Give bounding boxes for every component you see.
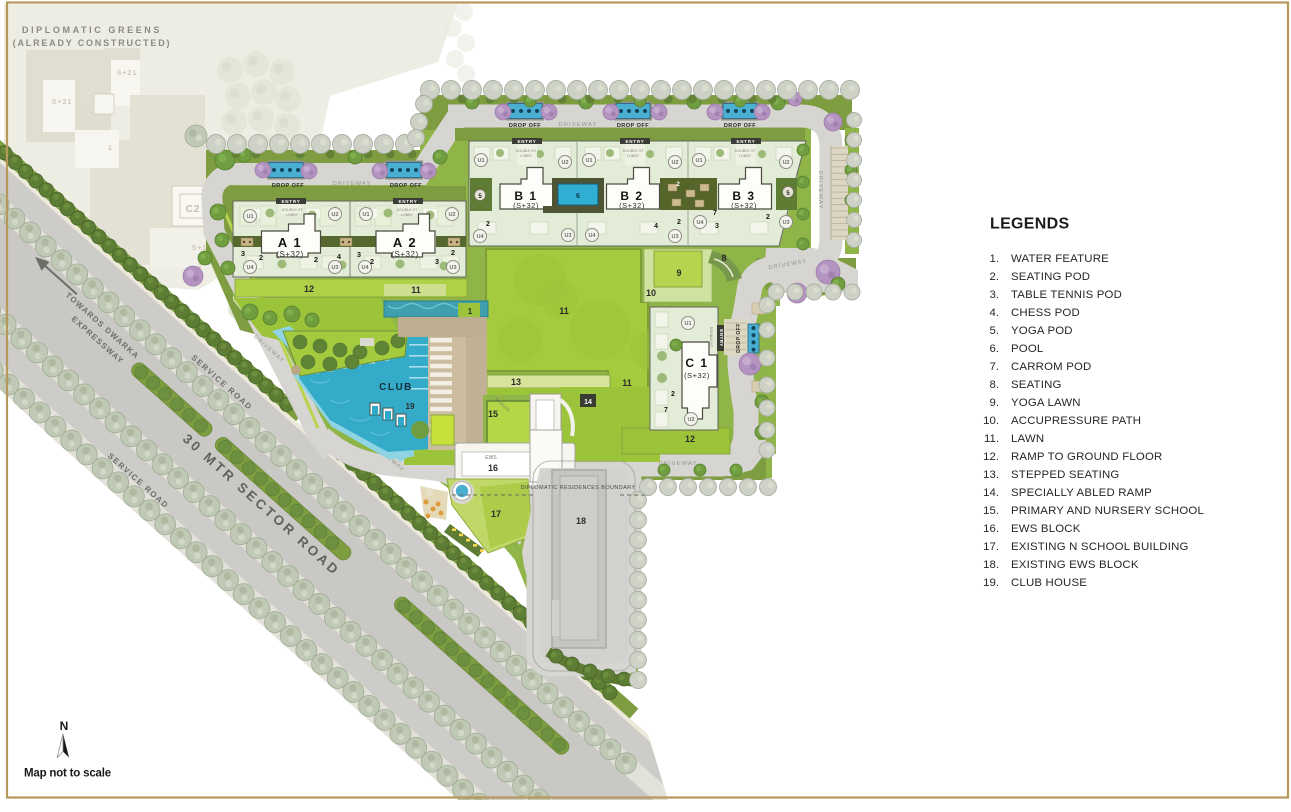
svg-text:2: 2	[766, 214, 770, 221]
svg-text:DIPLOMATIC RESIDENCES BOUNDARY: DIPLOMATIC RESIDENCES BOUNDARY	[520, 485, 635, 491]
svg-text:(S+32): (S+32)	[684, 371, 710, 380]
svg-text:U1: U1	[684, 321, 691, 327]
svg-text:7: 7	[664, 407, 668, 414]
svg-text:12: 12	[685, 434, 695, 444]
svg-text:YOGA POD: YOGA POD	[1011, 325, 1073, 337]
svg-text:EWS: EWS	[485, 455, 497, 461]
svg-text:DOUBLE HT: DOUBLE HT	[282, 208, 303, 212]
svg-text:ACCUPRESSURE PATH: ACCUPRESSURE PATH	[1011, 415, 1141, 427]
svg-text:13.: 13.	[983, 469, 999, 481]
svg-text:9: 9	[676, 268, 681, 278]
svg-text:17.: 17.	[983, 541, 999, 553]
svg-text:EWS BLOCK: EWS BLOCK	[1011, 523, 1081, 535]
svg-text:11.: 11.	[984, 433, 999, 445]
svg-text:DRIVEWAY: DRIVEWAY	[817, 170, 823, 209]
svg-text:U1: U1	[477, 158, 484, 164]
svg-text:(ALREADY CONSTRUCTED): (ALREADY CONSTRUCTED)	[13, 38, 172, 48]
svg-text:U1: U1	[362, 212, 369, 218]
svg-text:DOUBLE HT: DOUBLE HT	[397, 208, 418, 212]
svg-text:12.: 12.	[983, 451, 999, 463]
svg-text:U3: U3	[449, 265, 456, 271]
svg-text:DROP OFF: DROP OFF	[736, 323, 742, 353]
svg-text:DIPLOMATIC GREENS: DIPLOMATIC GREENS	[22, 25, 162, 35]
svg-text:POOL: POOL	[1011, 343, 1043, 355]
svg-text:16: 16	[488, 463, 498, 473]
svg-text:8.: 8.	[990, 379, 1000, 391]
svg-text:3.: 3.	[990, 289, 1000, 301]
svg-text:N: N	[60, 719, 69, 733]
svg-text:LOBBY: LOBBY	[627, 154, 640, 158]
svg-text:U2: U2	[671, 160, 678, 166]
svg-text:2: 2	[677, 219, 681, 226]
svg-text:(S+32): (S+32)	[731, 201, 757, 210]
svg-text:U3: U3	[782, 220, 789, 226]
svg-text:CARROM POD: CARROM POD	[1011, 361, 1091, 373]
svg-text:U4: U4	[588, 233, 596, 239]
svg-text:U4: U4	[246, 265, 254, 271]
svg-text:U1: U1	[246, 214, 253, 220]
svg-text:17: 17	[491, 509, 501, 519]
svg-text:2: 2	[259, 253, 263, 262]
svg-text:14.: 14.	[983, 487, 999, 499]
svg-text:5.: 5.	[990, 325, 1000, 337]
svg-text:18.: 18.	[983, 559, 999, 571]
svg-text:2: 2	[451, 248, 455, 257]
svg-text:12: 12	[304, 284, 314, 294]
svg-text:DROP OFF: DROP OFF	[272, 183, 304, 189]
svg-text:LOBBY: LOBBY	[401, 213, 414, 217]
svg-text:1.: 1.	[990, 253, 1000, 265]
svg-text:11: 11	[411, 285, 421, 295]
svg-text:15.: 15.	[983, 505, 999, 517]
svg-text:7.: 7.	[990, 361, 1000, 373]
svg-text:ENTRY: ENTRY	[517, 139, 536, 144]
svg-text:2: 2	[676, 181, 680, 188]
svg-text:11: 11	[559, 306, 569, 316]
svg-text:LOBBY: LOBBY	[739, 154, 752, 158]
svg-text:10: 10	[646, 288, 656, 298]
svg-text:11: 11	[622, 378, 632, 388]
svg-text:DRIVEWAY: DRIVEWAY	[558, 122, 597, 128]
svg-text:U3: U3	[564, 233, 571, 239]
svg-text:LAWN: LAWN	[1011, 433, 1044, 445]
svg-text:DOUBLE HT: DOUBLE HT	[623, 149, 644, 153]
svg-text:A 1: A 1	[278, 235, 302, 250]
svg-text:C 1: C 1	[685, 356, 708, 370]
svg-text:2: 2	[314, 255, 318, 264]
svg-text:4: 4	[654, 223, 658, 230]
svg-text:18: 18	[576, 516, 586, 526]
svg-text:LOBBY: LOBBY	[520, 154, 533, 158]
svg-text:15: 15	[488, 409, 498, 419]
svg-text:4.: 4.	[990, 307, 1000, 319]
svg-text:U3: U3	[671, 234, 678, 240]
svg-text:3: 3	[435, 257, 439, 266]
svg-text:U2: U2	[782, 160, 789, 166]
svg-text:6.: 6.	[990, 343, 1000, 355]
svg-text:DOUBLE HT: DOUBLE HT	[735, 149, 756, 153]
svg-text:ENTRY: ENTRY	[281, 199, 300, 204]
svg-text:DROP OFF: DROP OFF	[509, 123, 541, 129]
svg-text:10.: 10.	[983, 415, 999, 427]
svg-text:RAMP TO GROUND FLOOR: RAMP TO GROUND FLOOR	[1011, 451, 1162, 463]
svg-text:SEATING POD: SEATING POD	[1011, 271, 1090, 283]
svg-text:U2: U2	[561, 160, 568, 166]
svg-text:3: 3	[357, 250, 361, 259]
svg-text:C2: C2	[186, 204, 201, 215]
svg-text:2: 2	[486, 221, 490, 228]
svg-text:WATER FEATURE: WATER FEATURE	[1011, 253, 1109, 265]
svg-text:2.: 2.	[990, 271, 1000, 283]
svg-text:1: 1	[468, 307, 473, 316]
svg-text:LOBBY: LOBBY	[286, 213, 299, 217]
svg-text:DROP OFF: DROP OFF	[617, 123, 649, 129]
svg-text:ENTRY: ENTRY	[736, 139, 755, 144]
svg-text:U4: U4	[696, 220, 704, 226]
svg-text:U2: U2	[687, 417, 694, 423]
svg-text:19.: 19.	[983, 577, 999, 589]
svg-text:CLUB HOUSE: CLUB HOUSE	[1011, 577, 1087, 589]
svg-text:13: 13	[511, 377, 521, 387]
svg-text:DROP OFF: DROP OFF	[724, 123, 756, 129]
svg-text:ENTRY: ENTRY	[398, 199, 417, 204]
svg-text:SEATING: SEATING	[1011, 379, 1062, 391]
svg-text:DOUBLE HT: DOUBLE HT	[709, 327, 713, 348]
svg-text:16.: 16.	[983, 523, 999, 535]
svg-text:2: 2	[370, 257, 374, 266]
svg-text:(S+32): (S+32)	[513, 201, 539, 210]
svg-text:S+21: S+21	[117, 70, 138, 77]
svg-text:Map not to scale: Map not to scale	[24, 768, 111, 780]
svg-text:EXISTING N SCHOOL BUILDING: EXISTING N SCHOOL BUILDING	[1011, 541, 1189, 553]
svg-text:SPECIALLY ABLED RAMP: SPECIALLY ABLED RAMP	[1011, 487, 1152, 499]
svg-text:(S+32): (S+32)	[276, 250, 303, 259]
svg-text:U1: U1	[695, 158, 702, 164]
svg-text:8: 8	[721, 253, 726, 263]
svg-text:U4: U4	[476, 234, 484, 240]
svg-text:1: 1	[108, 145, 112, 152]
svg-text:U1: U1	[585, 158, 592, 164]
svg-text:STEPPED SEATING: STEPPED SEATING	[1011, 469, 1120, 481]
svg-text:YOGA LAWN: YOGA LAWN	[1011, 397, 1081, 409]
svg-text:U2: U2	[331, 212, 338, 218]
svg-text:CHESS POD: CHESS POD	[1011, 307, 1080, 319]
svg-text:DOUBLE HT: DOUBLE HT	[516, 149, 537, 153]
svg-text:DROP OFF: DROP OFF	[390, 183, 422, 189]
svg-text:LEGENDS: LEGENDS	[990, 216, 1069, 233]
svg-text:PRIMARY AND NURSERY SCHOOL: PRIMARY AND NURSERY SCHOOL	[1011, 505, 1204, 517]
svg-text:S+21: S+21	[52, 99, 73, 106]
svg-text:9.: 9.	[990, 397, 1000, 409]
svg-text:U2: U2	[448, 212, 455, 218]
svg-text:A 2: A 2	[393, 235, 417, 250]
svg-text:3: 3	[715, 223, 719, 230]
svg-text:U3: U3	[331, 265, 338, 271]
svg-text:6: 6	[576, 193, 580, 200]
svg-text:(S+32): (S+32)	[619, 201, 645, 210]
svg-text:3: 3	[241, 249, 245, 258]
svg-text:CLUB: CLUB	[379, 382, 413, 393]
svg-text:14: 14	[584, 399, 592, 406]
svg-text:7: 7	[713, 210, 717, 217]
svg-text:19: 19	[406, 402, 415, 411]
svg-text:U4: U4	[361, 265, 369, 271]
svg-text:(S+32): (S+32)	[391, 250, 418, 259]
svg-text:ENTRY: ENTRY	[719, 329, 724, 347]
svg-text:2: 2	[671, 391, 675, 398]
svg-text:TABLE TENNIS POD: TABLE TENNIS POD	[1011, 289, 1122, 301]
svg-text:EXISTING EWS BLOCK: EXISTING EWS BLOCK	[1011, 559, 1139, 571]
svg-text:ENTRY: ENTRY	[625, 139, 644, 144]
